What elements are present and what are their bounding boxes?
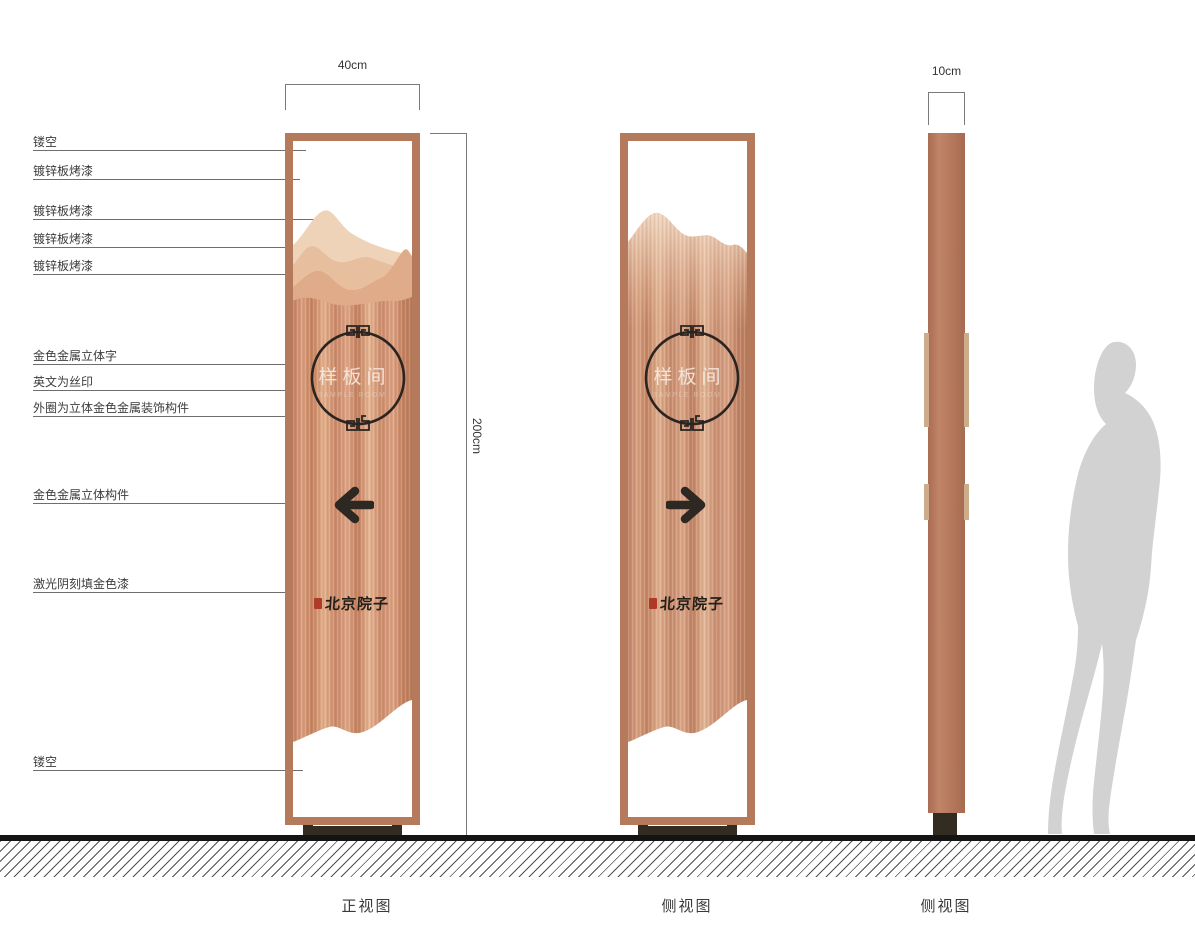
annotation-label-gold-letters: 金色金属立体字 — [33, 347, 117, 364]
annotation-label-hollow-top: 镂空 — [33, 133, 57, 150]
annotation-label-gold-component: 金色金属立体构件 — [33, 486, 129, 503]
side-view-arrow-protrusion — [964, 484, 969, 520]
dimension-height-line — [466, 133, 467, 836]
dimension-bracket-line — [928, 92, 965, 93]
front-sign-panel-graphic — [293, 141, 412, 817]
dimension-total-height: 200cm — [470, 418, 484, 454]
dimension-tick — [419, 84, 420, 110]
annotation-leader-line — [33, 274, 296, 275]
annotation-leader-line — [33, 592, 306, 593]
side-view-base-foot — [933, 812, 957, 836]
ground-hatching — [0, 841, 1195, 877]
annotation-label-galvanized-4: 镀锌板烤漆 — [33, 257, 93, 274]
brand-calligraphy-text: 北京院子 — [325, 593, 390, 614]
dimension-bracket-line — [285, 84, 420, 85]
annotation-leader-line — [33, 179, 300, 180]
design-drawing-canvas: 镂空 镀锌板烤漆 镀锌板烤漆 镀锌板烤漆 镀锌板烤漆 金色金属立体字 英文为丝印… — [0, 0, 1195, 927]
dimension-tick — [928, 92, 929, 125]
red-seal-stamp-icon — [649, 598, 657, 609]
caption-side-view: 侧视图 — [906, 895, 986, 916]
annotation-label-laser-engraved: 激光阴刻填金色漆 — [33, 575, 129, 592]
right-arrow-icon — [666, 486, 710, 524]
human-scale-silhouette — [1028, 338, 1178, 836]
dimension-tick — [285, 84, 286, 110]
annotation-label-galvanized-1: 镀锌板烤漆 — [33, 162, 93, 179]
annotation-label-galvanized-2: 镀锌板烤漆 — [33, 202, 93, 219]
back-sign-brand: 北京院子 — [637, 593, 737, 614]
dimension-bracket-line — [430, 133, 467, 134]
side-view-ring-protrusion — [924, 333, 929, 427]
dimension-front-width: 40cm — [285, 58, 420, 72]
annotation-leader-line — [33, 247, 310, 248]
dimension-tick — [964, 92, 965, 125]
side-view-ring-protrusion — [964, 333, 969, 427]
caption-front-view: 正视图 — [327, 895, 407, 916]
annotation-leader-line — [33, 219, 322, 220]
side-view-column — [928, 133, 965, 813]
annotation-label-outer-ring: 外圈为立体金色金属装饰构件 — [33, 399, 189, 416]
annotation-leader-line — [33, 150, 306, 151]
annotation-leader-line — [33, 770, 303, 771]
back-sign-panel-graphic — [628, 141, 747, 817]
side-view-arrow-protrusion — [924, 484, 929, 520]
annotation-label-hollow-bottom: 镂空 — [33, 753, 57, 770]
left-arrow-icon — [330, 486, 374, 524]
red-seal-stamp-icon — [314, 598, 322, 609]
annotation-label-english-silkprint: 英文为丝印 — [33, 373, 93, 390]
front-sign-brand: 北京院子 — [302, 593, 402, 614]
annotation-label-galvanized-3: 镀锌板烤漆 — [33, 230, 93, 247]
dimension-side-width: 10cm — [920, 64, 973, 78]
brushed-texture-overlay — [628, 213, 747, 742]
brand-calligraphy-text: 北京院子 — [660, 593, 725, 614]
caption-back-view: 侧视图 — [647, 895, 727, 916]
annotation-leader-line — [33, 416, 318, 417]
